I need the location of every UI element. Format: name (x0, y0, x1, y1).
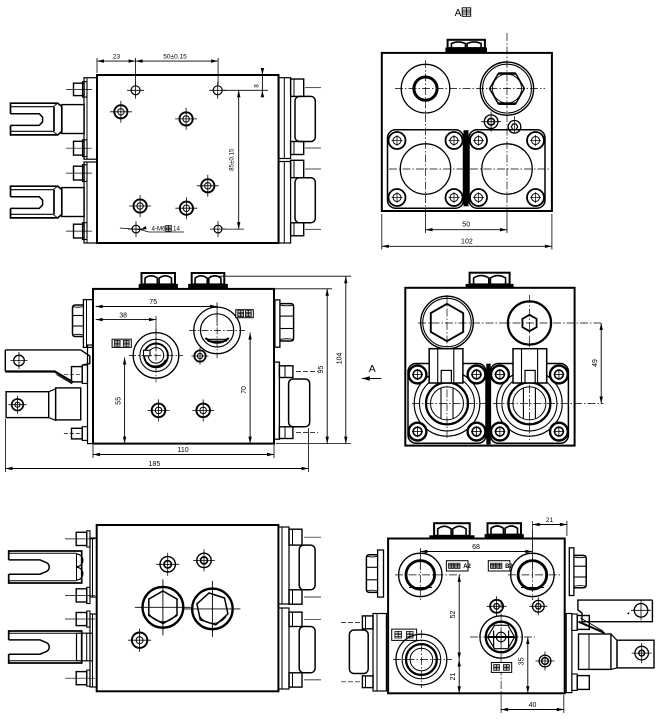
svg-text:55: 55 (115, 397, 122, 405)
svg-text:21: 21 (546, 517, 554, 524)
svg-text:75: 75 (149, 299, 157, 306)
svg-text:110: 110 (178, 447, 189, 454)
svg-text:50: 50 (462, 222, 470, 229)
svg-text:52: 52 (450, 611, 457, 619)
svg-text:95: 95 (318, 366, 325, 374)
svg-text:21: 21 (450, 673, 457, 681)
svg-text:70: 70 (241, 386, 248, 394)
svg-text:A2: A2 (463, 564, 471, 570)
svg-text:23: 23 (113, 54, 121, 61)
svg-text:4-M6: 4-M6 (151, 226, 166, 233)
svg-text:50±0.15: 50±0.15 (163, 54, 187, 61)
svg-text:38: 38 (119, 312, 127, 319)
svg-text:35: 35 (519, 657, 526, 665)
svg-text:85±0.15: 85±0.15 (228, 148, 235, 171)
svg-text:B2: B2 (505, 564, 513, 570)
svg-text:102: 102 (461, 238, 473, 245)
svg-text:185: 185 (149, 461, 161, 468)
svg-text:40: 40 (529, 702, 537, 709)
svg-text:49: 49 (592, 359, 599, 367)
svg-text:104: 104 (337, 352, 344, 364)
svg-text:A: A (455, 8, 462, 19)
svg-text:A: A (369, 363, 376, 375)
svg-text:68: 68 (472, 544, 480, 551)
svg-text:14: 14 (173, 226, 180, 233)
